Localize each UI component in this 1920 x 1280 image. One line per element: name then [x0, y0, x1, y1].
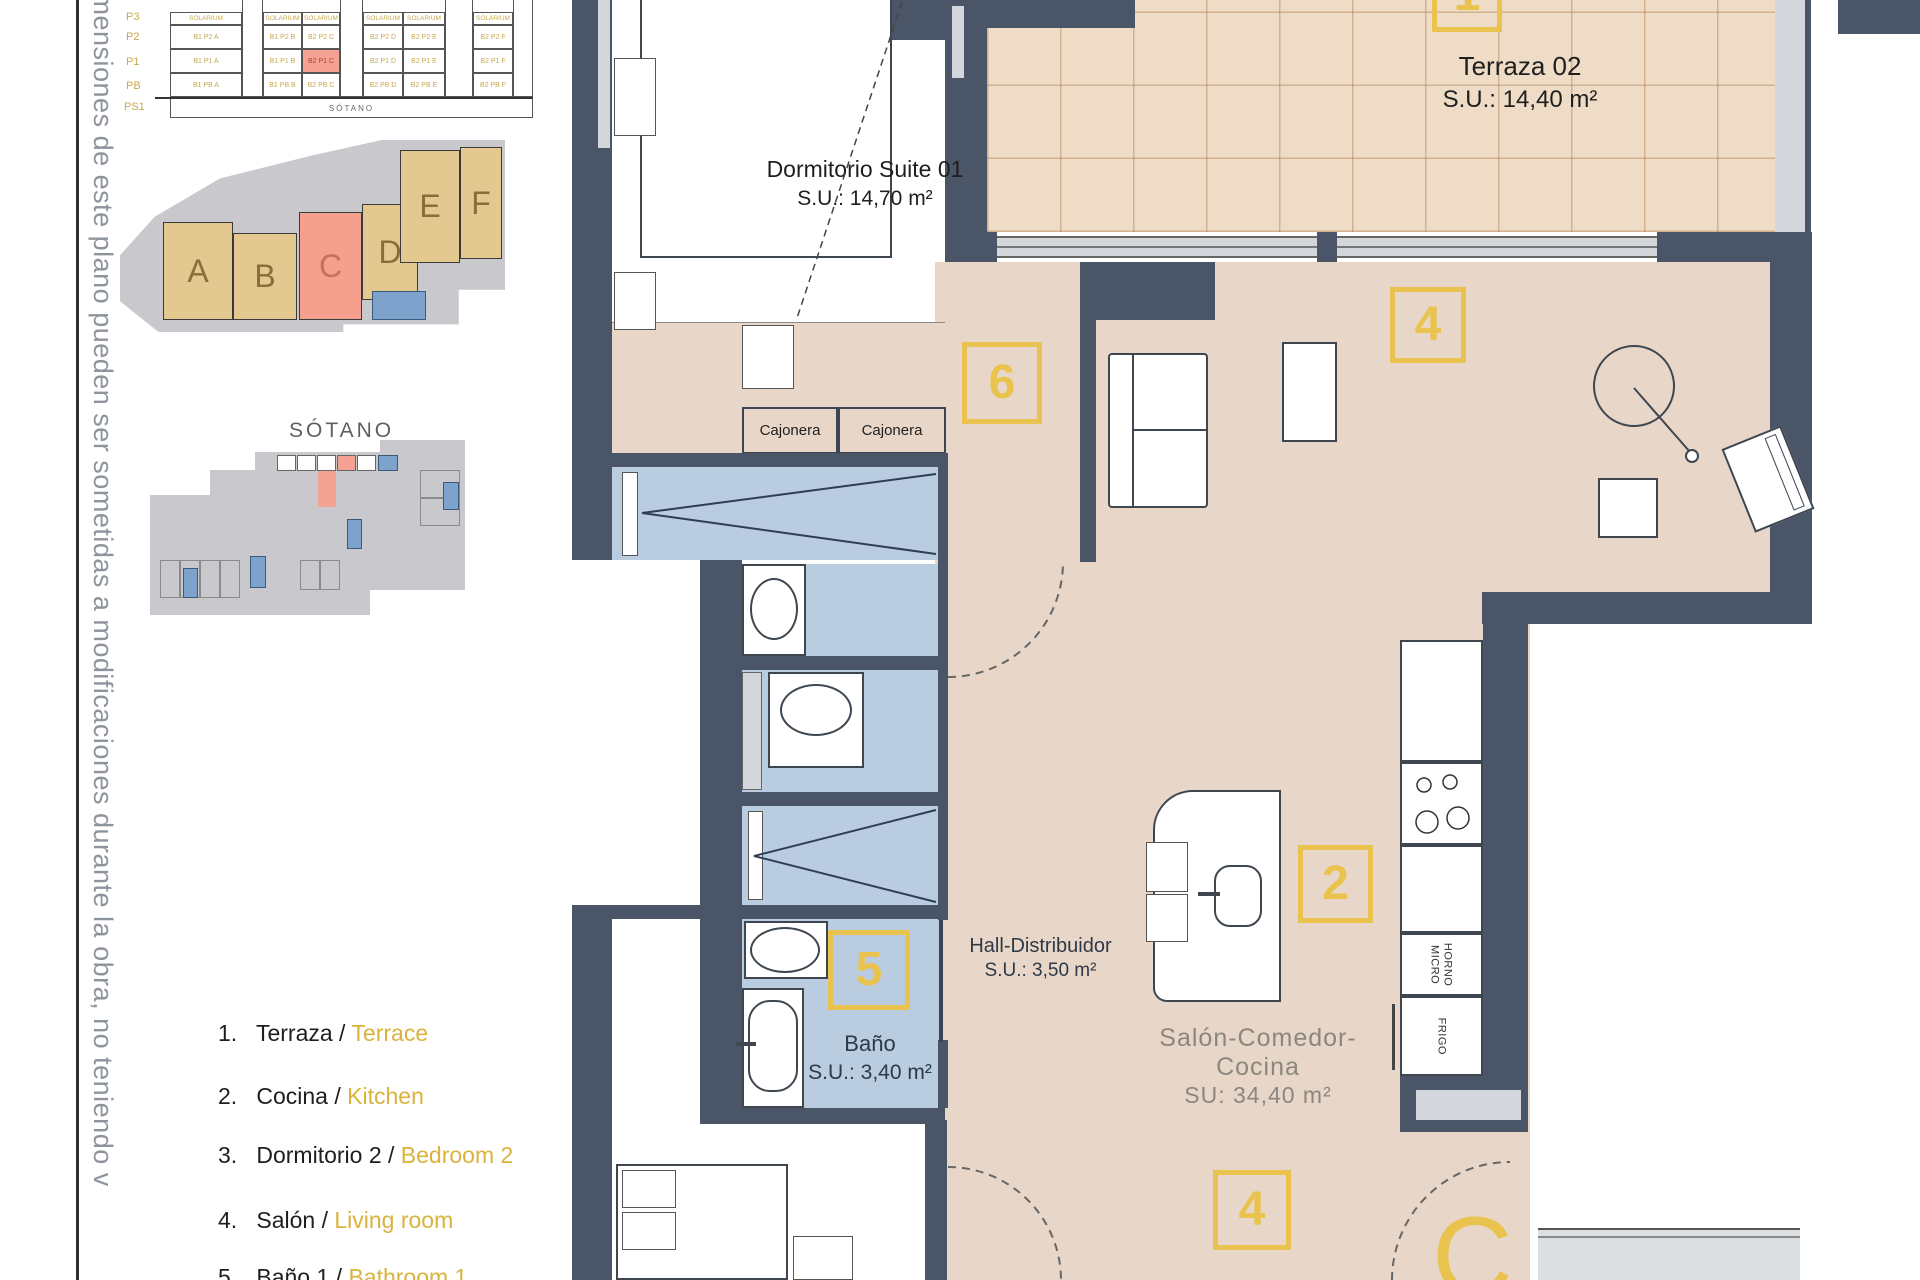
terrace-floor: [987, 0, 1775, 232]
wall-bath1-bottom: [700, 1108, 945, 1124]
marker-number: 1: [1454, 0, 1481, 19]
legend-es: Cocina: [256, 1083, 328, 1109]
parked-car: [443, 482, 459, 510]
floor-label-p2: P2: [126, 31, 139, 43]
marker-living-bottom: 4: [1213, 1170, 1291, 1250]
wall-suite-hall: [1080, 262, 1096, 562]
legend-separator: /: [322, 1207, 328, 1233]
marker-number: 6: [989, 359, 1016, 407]
island-faucet: [1198, 892, 1220, 896]
unit-cell-highlighted: B2 P1 C: [302, 49, 340, 73]
oven-micro-label: HORNO MICRO: [1428, 935, 1453, 995]
legend-en: Living room: [334, 1207, 453, 1233]
unit-cell: B1 PB A: [170, 73, 242, 97]
legend-separator: /: [339, 1020, 345, 1046]
stall-outline: [320, 560, 340, 590]
legend-es: Dormitorio 2: [256, 1142, 381, 1168]
faucet: [736, 1042, 756, 1046]
marker-number: 5: [856, 946, 883, 994]
cajonera-box: Cajonera: [838, 407, 946, 454]
floor-label-ps1: PS1: [124, 101, 145, 113]
nightstand: [614, 58, 656, 136]
fridge-label: FRIGO: [1435, 1006, 1448, 1066]
unit-cell: B1 P1 A: [170, 49, 242, 73]
marker-suite: 6: [962, 342, 1042, 424]
unit-cell: B1 P2 A: [170, 25, 242, 49]
legend-number: 5.: [218, 1264, 237, 1280]
window-left-upper: [598, 0, 610, 148]
side-table: [1598, 478, 1658, 538]
unit-cell: B1 P1 B: [263, 49, 302, 73]
island-sink: [1214, 865, 1262, 927]
oven-label: HORNO: [1441, 935, 1454, 995]
unit-letter: C: [1432, 1192, 1513, 1280]
site-building-a: A: [163, 222, 233, 320]
stool: [1146, 842, 1188, 892]
dresser: [742, 325, 794, 389]
parking-stall: [317, 455, 336, 471]
marker-number: 4: [1415, 301, 1442, 349]
bath1-area: S.U.: 3,40 m²: [790, 1059, 950, 1086]
site-building-f: F: [460, 147, 502, 259]
toilet-1: [750, 927, 820, 973]
wall-utility-hall-lower: [938, 1040, 948, 1108]
building-letter: D: [378, 234, 401, 271]
legend-es: Terraza: [256, 1020, 333, 1046]
wall-kitchen-right: [1483, 624, 1528, 1132]
wall-terrace-top-left: [987, 0, 1135, 28]
legend-separator: /: [334, 1083, 340, 1109]
unit-cell: B2 P2 E: [403, 25, 445, 49]
floor-label-p1: P1: [126, 56, 139, 68]
sink-2: [750, 578, 798, 640]
site-building-b: B: [233, 233, 297, 320]
legend-separator: /: [388, 1142, 394, 1168]
wall-utility-hall: [938, 453, 948, 920]
stall-outline: [300, 560, 320, 590]
legend-en: Kitchen: [347, 1083, 424, 1109]
exterior-step-line: [1538, 1236, 1800, 1238]
unit-cell: B2 PB F: [473, 73, 513, 97]
wall-left-lower: [572, 905, 612, 1280]
nightstand: [793, 1236, 853, 1280]
wall-window-band-left: [945, 232, 997, 262]
wall-wc-bottom: [742, 792, 945, 806]
parked-car: [347, 519, 362, 549]
tower-gap: [513, 0, 533, 97]
suite-room-label: Dormitorio Suite 01 S.U.: 14,70 m²: [740, 155, 990, 212]
tower-gap: [340, 0, 363, 97]
legend-separator: /: [336, 1264, 342, 1280]
sheet-frame-line: [76, 0, 79, 1280]
parking-stall-highlighted: [337, 455, 356, 471]
building-letter: C: [319, 248, 342, 285]
wall-step: [1482, 592, 1812, 624]
unit-cell: B1 PB B: [263, 73, 302, 97]
unit-cell: B1 P2 B: [263, 25, 302, 49]
unit-cell: B2 PB C: [302, 73, 340, 97]
marker-living-top: 4: [1390, 287, 1466, 363]
building-letter: F: [471, 185, 491, 222]
tower-gap: [445, 0, 473, 97]
basement-title: SÓTANO: [289, 419, 394, 443]
marker-kitchen: 2: [1298, 845, 1373, 923]
hall-label: Hall-Distribuidor S.U.: 3,50 m²: [958, 933, 1123, 984]
solarium-header: SOLARIUM: [170, 12, 242, 25]
legend-number: 1.: [218, 1020, 237, 1046]
solarium-header: SOLARIUM: [363, 12, 403, 25]
legend-es: Salón: [256, 1207, 315, 1233]
hall-name: Hall-Distribuidor: [958, 933, 1123, 959]
toilet-2: [780, 684, 852, 736]
building-letter: E: [419, 188, 440, 225]
terrace-room-label: Terraza 02 S.U.: 14,40 m²: [1395, 50, 1645, 115]
suite-room-area: S.U.: 14,70 m²: [740, 185, 990, 212]
floor-label-pb: PB: [126, 80, 141, 92]
unit-cell: B2 P1 F: [473, 49, 513, 73]
living-floor-upper: [935, 262, 1812, 624]
duct: [742, 672, 762, 790]
wall-under-cajonera: [612, 453, 945, 467]
round-table: [1593, 345, 1675, 427]
site-pool: [372, 291, 426, 320]
legend-item-3: 3. Dormitorio 2 / Bedroom 2: [218, 1142, 513, 1169]
tower-gap: [242, 0, 263, 97]
wall-window-mullion: [1317, 232, 1337, 262]
basement-row: SÓTANO: [170, 99, 533, 118]
legend-en: Terrace: [351, 1020, 428, 1046]
pillow: [622, 1212, 676, 1250]
cajonera-box: Cajonera: [742, 407, 838, 454]
parked-car: [183, 568, 198, 598]
door-suite-top: [952, 6, 964, 78]
parking-stall: [277, 455, 296, 471]
unit-cell: B2 P2 F: [473, 25, 513, 49]
wardrobe-2-door: [748, 811, 763, 900]
marker-number: 4: [1239, 1186, 1266, 1234]
legend-number: 3.: [218, 1142, 237, 1168]
unit-cell: B2 P1 E: [403, 49, 445, 73]
site-building-c-highlighted: C: [299, 212, 362, 320]
counter-section: [1400, 640, 1483, 762]
solarium-header: SOLARIUM: [263, 12, 302, 25]
vertical-disclaimer: imensiones de este plano pueden ser some…: [87, 0, 118, 1187]
unit-cell: B2 PB E: [403, 73, 445, 97]
sofa-cushion-line: [1134, 429, 1206, 431]
stall-outline: [220, 560, 240, 598]
stool: [1146, 894, 1188, 942]
wardrobe-2: [742, 806, 945, 905]
unit-cell: B2 PB D: [363, 73, 403, 97]
basement-highlighted-unit: [318, 471, 336, 507]
floor-label-p3: P3: [126, 11, 139, 23]
bed-suite: [640, 0, 892, 258]
wardrobe-1: [612, 467, 945, 560]
legend-es: Baño 1: [256, 1264, 329, 1280]
wall-terrace-corner: [1838, 0, 1920, 34]
coffee-table: [1282, 342, 1337, 442]
terrace-railing: [1775, 0, 1805, 232]
unit-cell: B2 P1 D: [363, 49, 403, 73]
legend-item-5: 5. Baño 1 / Bathroom 1: [218, 1264, 467, 1280]
wall-living-pier: [1080, 262, 1215, 320]
unit-cell: B2 P2 C: [302, 25, 340, 49]
wall-left-mid: [700, 560, 742, 1120]
parked-car: [250, 556, 266, 588]
solarium-header: SOLARIUM: [403, 12, 445, 25]
nightstand: [614, 272, 656, 330]
counter-hob: [1400, 762, 1483, 845]
legend-item-2: 2. Cocina / Kitchen: [218, 1083, 424, 1110]
wall-bath1-top: [572, 905, 945, 919]
sliding-window-2-line: [1337, 246, 1657, 248]
terrace-room-area: S.U.: 14,40 m²: [1395, 84, 1645, 115]
terrace-railing-edge: [1805, 0, 1811, 232]
sliding-window-1-line: [997, 246, 1317, 248]
legend-number: 2.: [218, 1083, 237, 1109]
legend-item-1: 1. Terraza / Terrace: [218, 1020, 428, 1047]
suite-room-name: Dormitorio Suite 01: [740, 155, 990, 185]
pillow: [622, 1170, 676, 1208]
legend-en: Bathroom 1: [348, 1264, 467, 1280]
legend-item-4: 4. Salón / Living room: [218, 1207, 453, 1234]
kitchen-window: [1416, 1090, 1521, 1120]
parking-stall: [357, 455, 376, 471]
solarium-header: SOLARIUM: [302, 12, 340, 25]
terrace-room-name: Terraza 02: [1395, 50, 1645, 84]
hall-area: S.U.: 3,50 m²: [958, 959, 1123, 984]
salon-area: SU: 34,40 m²: [1118, 1082, 1398, 1109]
building-letter: B: [254, 258, 275, 295]
solarium-header: SOLARIUM: [473, 12, 513, 25]
legend-en: Bedroom 2: [401, 1142, 514, 1168]
building-letter: A: [187, 253, 208, 290]
bathroom-2-floor: [806, 564, 945, 656]
salon-name: Salón-Comedor-Cocina: [1118, 1024, 1398, 1082]
floor-plan-sheet: imensiones de este plano pueden ser some…: [0, 0, 1920, 1280]
bath1-label: Baño S.U.: 3,40 m²: [790, 1030, 950, 1086]
unit-cell: B2 P2 D: [363, 25, 403, 49]
wall-bedroom2-right: [925, 1120, 947, 1280]
parking-stall: [297, 455, 316, 471]
bath1-name: Baño: [790, 1030, 950, 1059]
stall-outline: [160, 560, 180, 598]
salon-label: Salón-Comedor-Cocina SU: 34,40 m²: [1118, 1024, 1398, 1109]
site-building-e: E: [400, 150, 460, 263]
fridge-label-text: FRIGO: [1435, 1018, 1447, 1055]
micro-label: MICRO: [1428, 935, 1441, 995]
marker-terrace: 1: [1432, 0, 1502, 32]
wall-wc-top: [742, 656, 945, 670]
counter-section: [1400, 845, 1483, 933]
parking-stall-blue: [378, 455, 398, 471]
marker-number: 2: [1322, 860, 1349, 908]
stall-outline: [200, 560, 220, 598]
wardrobe-1-door: [622, 472, 638, 556]
marker-bath: 5: [828, 930, 910, 1010]
legend-number: 4.: [218, 1207, 237, 1233]
